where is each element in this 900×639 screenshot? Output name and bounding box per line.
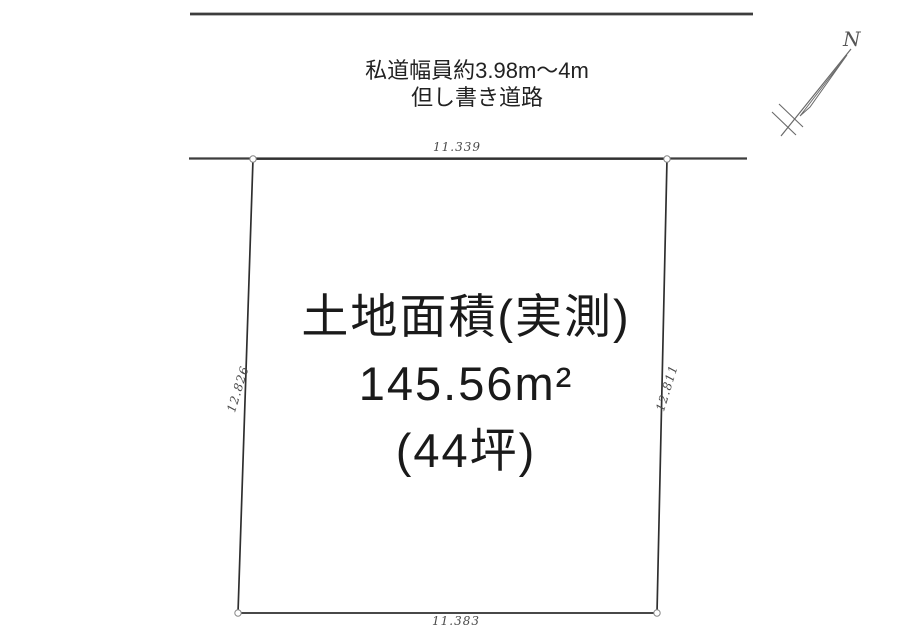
road-note-line1: 私道幅員約3.98m〜4m <box>365 57 589 84</box>
corner-marker-bottom-right <box>654 610 660 616</box>
north-label: N <box>842 27 862 51</box>
corner-marker-top-left <box>250 156 256 162</box>
dimension-top: 11.339 <box>433 140 481 154</box>
plot-area-text: 土地面積(実測) 145.56m² (44坪) <box>301 283 630 484</box>
corner-marker-top-right <box>664 156 670 162</box>
area-tsubo: (44坪) <box>301 417 630 484</box>
land-survey-diagram: N 私道幅員約3.98m〜4m 但し書き道路 11.339 11.383 12.… <box>0 0 900 639</box>
area-square-meters: 145.56m² <box>301 350 630 417</box>
road-note-line2: 但し書き道路 <box>365 84 589 111</box>
road-note: 私道幅員約3.98m〜4m 但し書き道路 <box>365 57 589 111</box>
dimension-bottom: 11.383 <box>432 614 480 628</box>
corner-marker-bottom-left <box>235 610 241 616</box>
area-title: 土地面積(実測) <box>301 283 630 350</box>
north-arrow-icon: N <box>772 27 862 136</box>
